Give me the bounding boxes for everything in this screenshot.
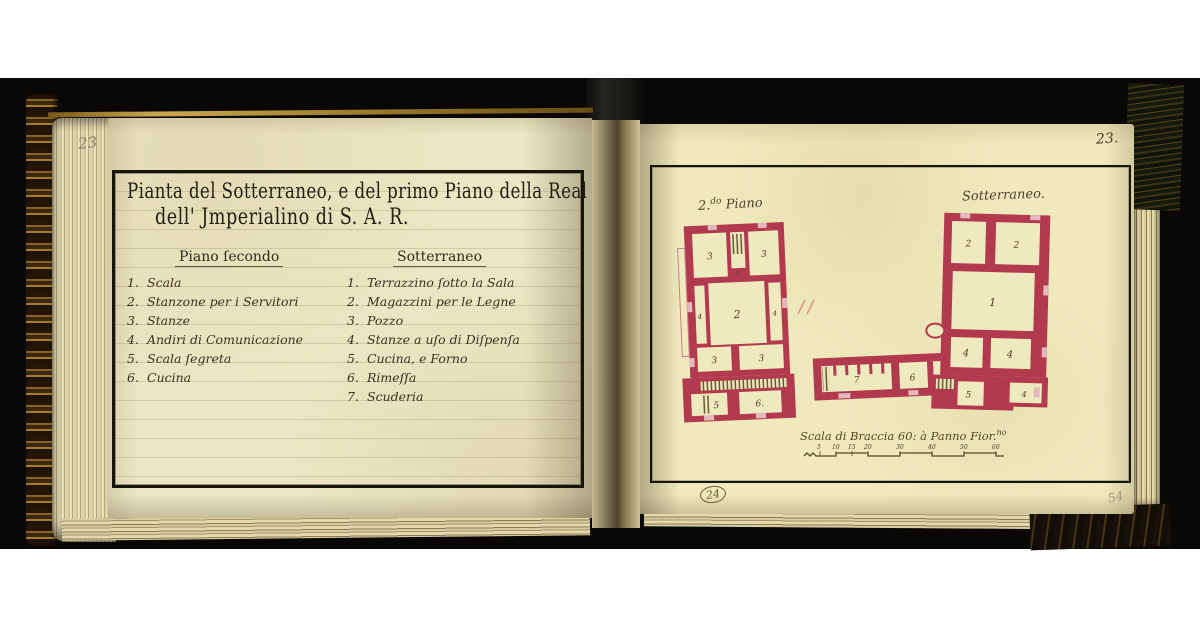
room-number: 2 <box>964 239 971 249</box>
page-fore-edge-stack <box>52 118 116 542</box>
room-number: 4 <box>771 309 777 317</box>
list-item: 7.Scuderia <box>347 387 520 406</box>
list-item: 1.Scala <box>127 273 303 292</box>
red-collation-mark <box>798 300 814 314</box>
room-number: 4 <box>1021 390 1027 399</box>
room-number: 3 <box>707 252 713 262</box>
scale-tick: 20 <box>863 444 872 451</box>
scale-tick: 15 <box>848 444 856 451</box>
plan-secondo-piano: 3 1 3 4 2 4 3 3 5 6. <box>676 222 796 423</box>
scale-tick: 40 <box>927 444 936 451</box>
scale-tick: 10 <box>832 444 840 451</box>
floor-plan-drawing: 3 1 3 4 2 4 3 3 5 6. <box>640 124 1134 514</box>
legend-header-sotterraneo: Sotterraneo <box>393 249 486 267</box>
legend-list-piano-secondo: 1.Scala 2.Stanzone per i Servitori 3.Sta… <box>127 273 303 387</box>
list-item: 2.Stanzone per i Servitori <box>127 292 303 311</box>
list-item: 5.Cucina, e Forno <box>347 349 520 368</box>
room-number: 5 <box>713 401 719 411</box>
room-number: 4 <box>696 313 702 321</box>
room-number: 6 <box>909 373 915 383</box>
scale-bar: 5 10 15 20 30 40 50 60 <box>804 444 1004 456</box>
manuscript-right-page: 23. 2.do Piano Sotterraneo. <box>640 124 1134 514</box>
room-number: 4 <box>1006 349 1014 360</box>
list-item: 2.Magazzini per le Legne <box>347 292 520 311</box>
scale-tick: 60 <box>992 444 1000 451</box>
room-number: 6. <box>755 399 764 409</box>
list-item: 6.Rimeſſa <box>347 368 520 387</box>
manuscript-left-page: Pianta del Sotterraneo, e del primo Pian… <box>108 118 592 518</box>
list-item: 6.Cucina <box>127 368 303 387</box>
photograph-background: 23 Pianta del Sotterraneo, e del primo P… <box>0 78 1200 549</box>
list-item: 5.Scala ſegreta <box>127 349 303 368</box>
ruled-frame: Pianta del Sotterraneo, e del primo Pian… <box>112 170 584 488</box>
list-item: 3.Stanze <box>127 311 303 330</box>
legend-header-piano-secondo: Piano ſecondo <box>175 249 283 267</box>
room-number: 5 <box>965 390 971 400</box>
scale-tick: 30 <box>896 444 904 451</box>
room-number: 7 <box>854 376 860 386</box>
scale-tick: 50 <box>960 444 968 451</box>
list-item: 4.Andiri di Comunicazione <box>127 330 303 349</box>
page-title-line1: Pianta del Sotterraneo, e del primo Pian… <box>127 179 633 203</box>
room-number: 3 <box>758 354 764 364</box>
page-title-line2: dell' Jmperialino di S. A. R. <box>155 205 409 230</box>
room-number: 2 <box>732 308 741 321</box>
screenshot-stage: 23 Pianta del Sotterraneo, e del primo P… <box>0 0 1200 628</box>
list-item: 1.Terrazzino ſotto la Sala <box>347 273 520 292</box>
room-number: 4 <box>962 348 970 359</box>
plan-sotterraneo: 7 6 3 <box>812 209 1053 411</box>
room-number: 2 <box>1012 241 1019 251</box>
scale-caption: Scala di Braccia 60: à Panno Fior.no <box>800 428 1007 443</box>
room-number: 1 <box>736 270 741 278</box>
room-number: 1 <box>989 296 996 309</box>
room-number: 3 <box>711 356 717 366</box>
list-item: 3.Pozzo <box>347 311 520 330</box>
gilt-board-top-edge <box>48 108 593 118</box>
scale-tick: 5 <box>817 444 821 451</box>
room-number: 3 <box>761 250 767 260</box>
book-gutter-shadow <box>592 120 640 528</box>
list-item: 4.Stanze a uſo di Diſpenſa <box>347 330 520 349</box>
folio-number-pencil: 23 <box>77 133 98 153</box>
legend-list-sotterraneo: 1.Terrazzino ſotto la Sala 2.Magazzini p… <box>347 273 520 406</box>
